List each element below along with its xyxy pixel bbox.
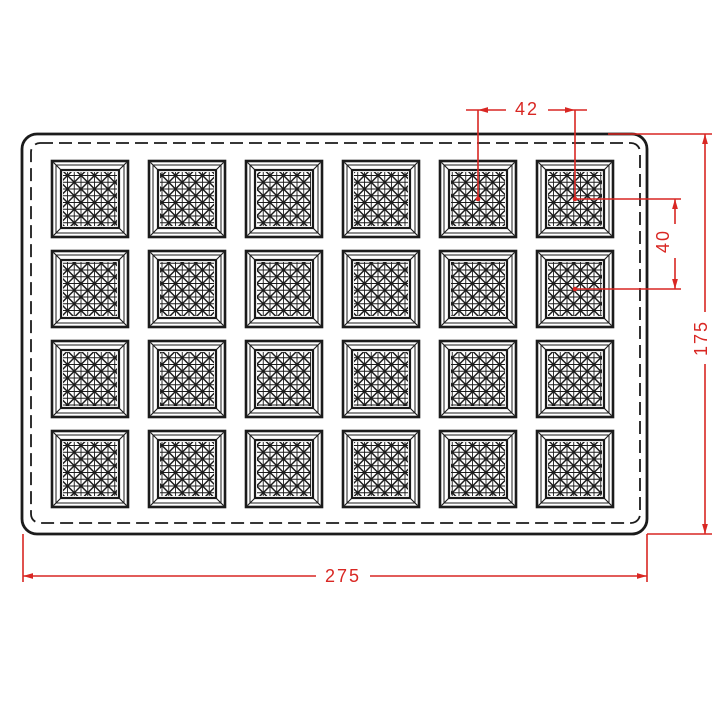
cavity-4-1 <box>52 431 128 507</box>
cavity-2-1 <box>52 251 128 327</box>
cavity-1-2 <box>149 161 225 237</box>
cavity-2-3 <box>246 251 322 327</box>
cavity-2-5 <box>440 251 516 327</box>
cavity-4-6 <box>537 431 613 507</box>
dim-overall-height-label: 175 <box>692 318 710 358</box>
cavity-4-2 <box>149 431 225 507</box>
cavity-3-5 <box>440 341 516 417</box>
cavity-4-3 <box>246 431 322 507</box>
dim-pitch-y-label: 40 <box>654 227 672 255</box>
technical-drawing-canvas: 42 40 175 275 <box>0 0 720 720</box>
cavity-1-1 <box>52 161 128 237</box>
cavity-1-3 <box>246 161 322 237</box>
cavity-3-2 <box>149 341 225 417</box>
cavity-4-4 <box>343 431 419 507</box>
cavity-1-4 <box>343 161 419 237</box>
cavity-4-5 <box>440 431 516 507</box>
mold-tray-drawing <box>0 0 720 720</box>
cavity-3-1 <box>52 341 128 417</box>
cavity-3-6 <box>537 341 613 417</box>
cavity-3-4 <box>343 341 419 417</box>
cavity-3-3 <box>246 341 322 417</box>
dim-overall-width-label: 275 <box>323 567 363 585</box>
dim-pitch-x-label: 42 <box>513 100 541 118</box>
cavity-2-4 <box>343 251 419 327</box>
cavity-2-2 <box>149 251 225 327</box>
